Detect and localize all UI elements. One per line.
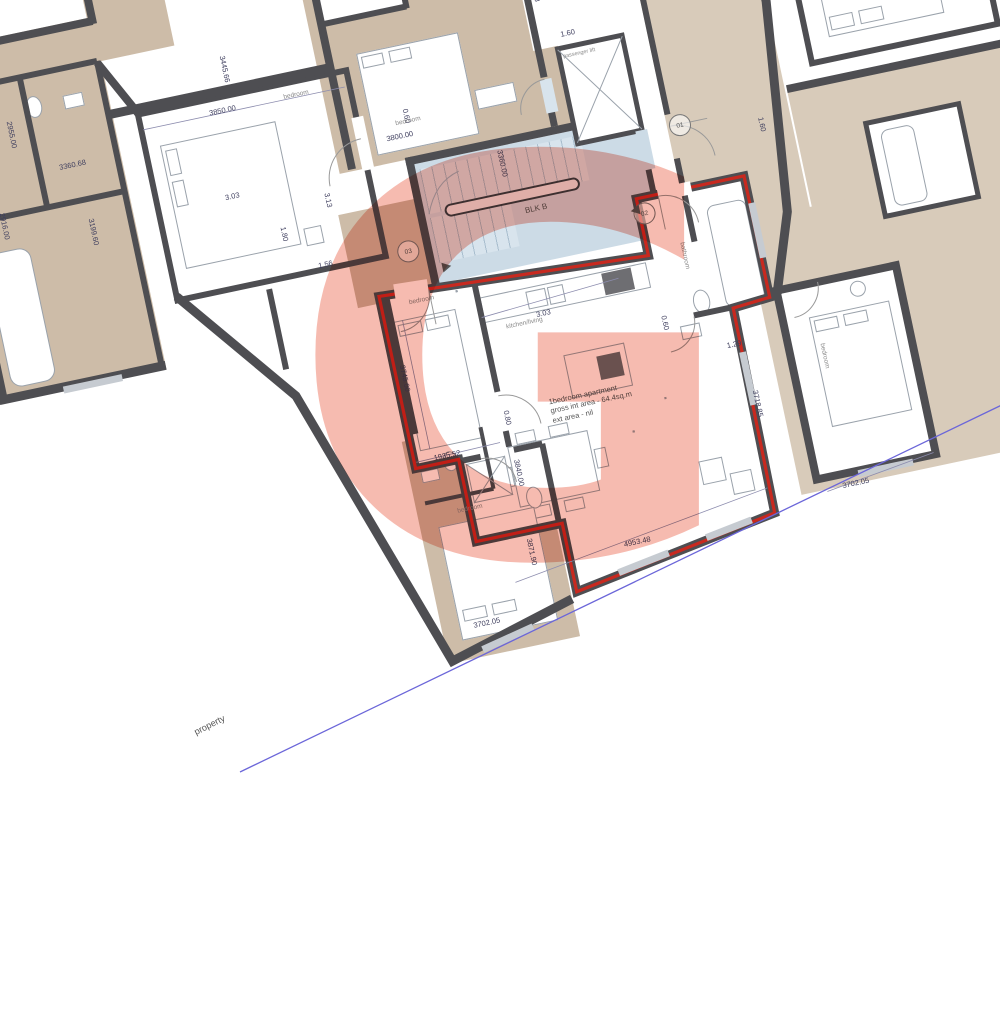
logo-watermark: G bbox=[288, 90, 739, 640]
dim-hall-right: 1.60 bbox=[757, 116, 767, 132]
